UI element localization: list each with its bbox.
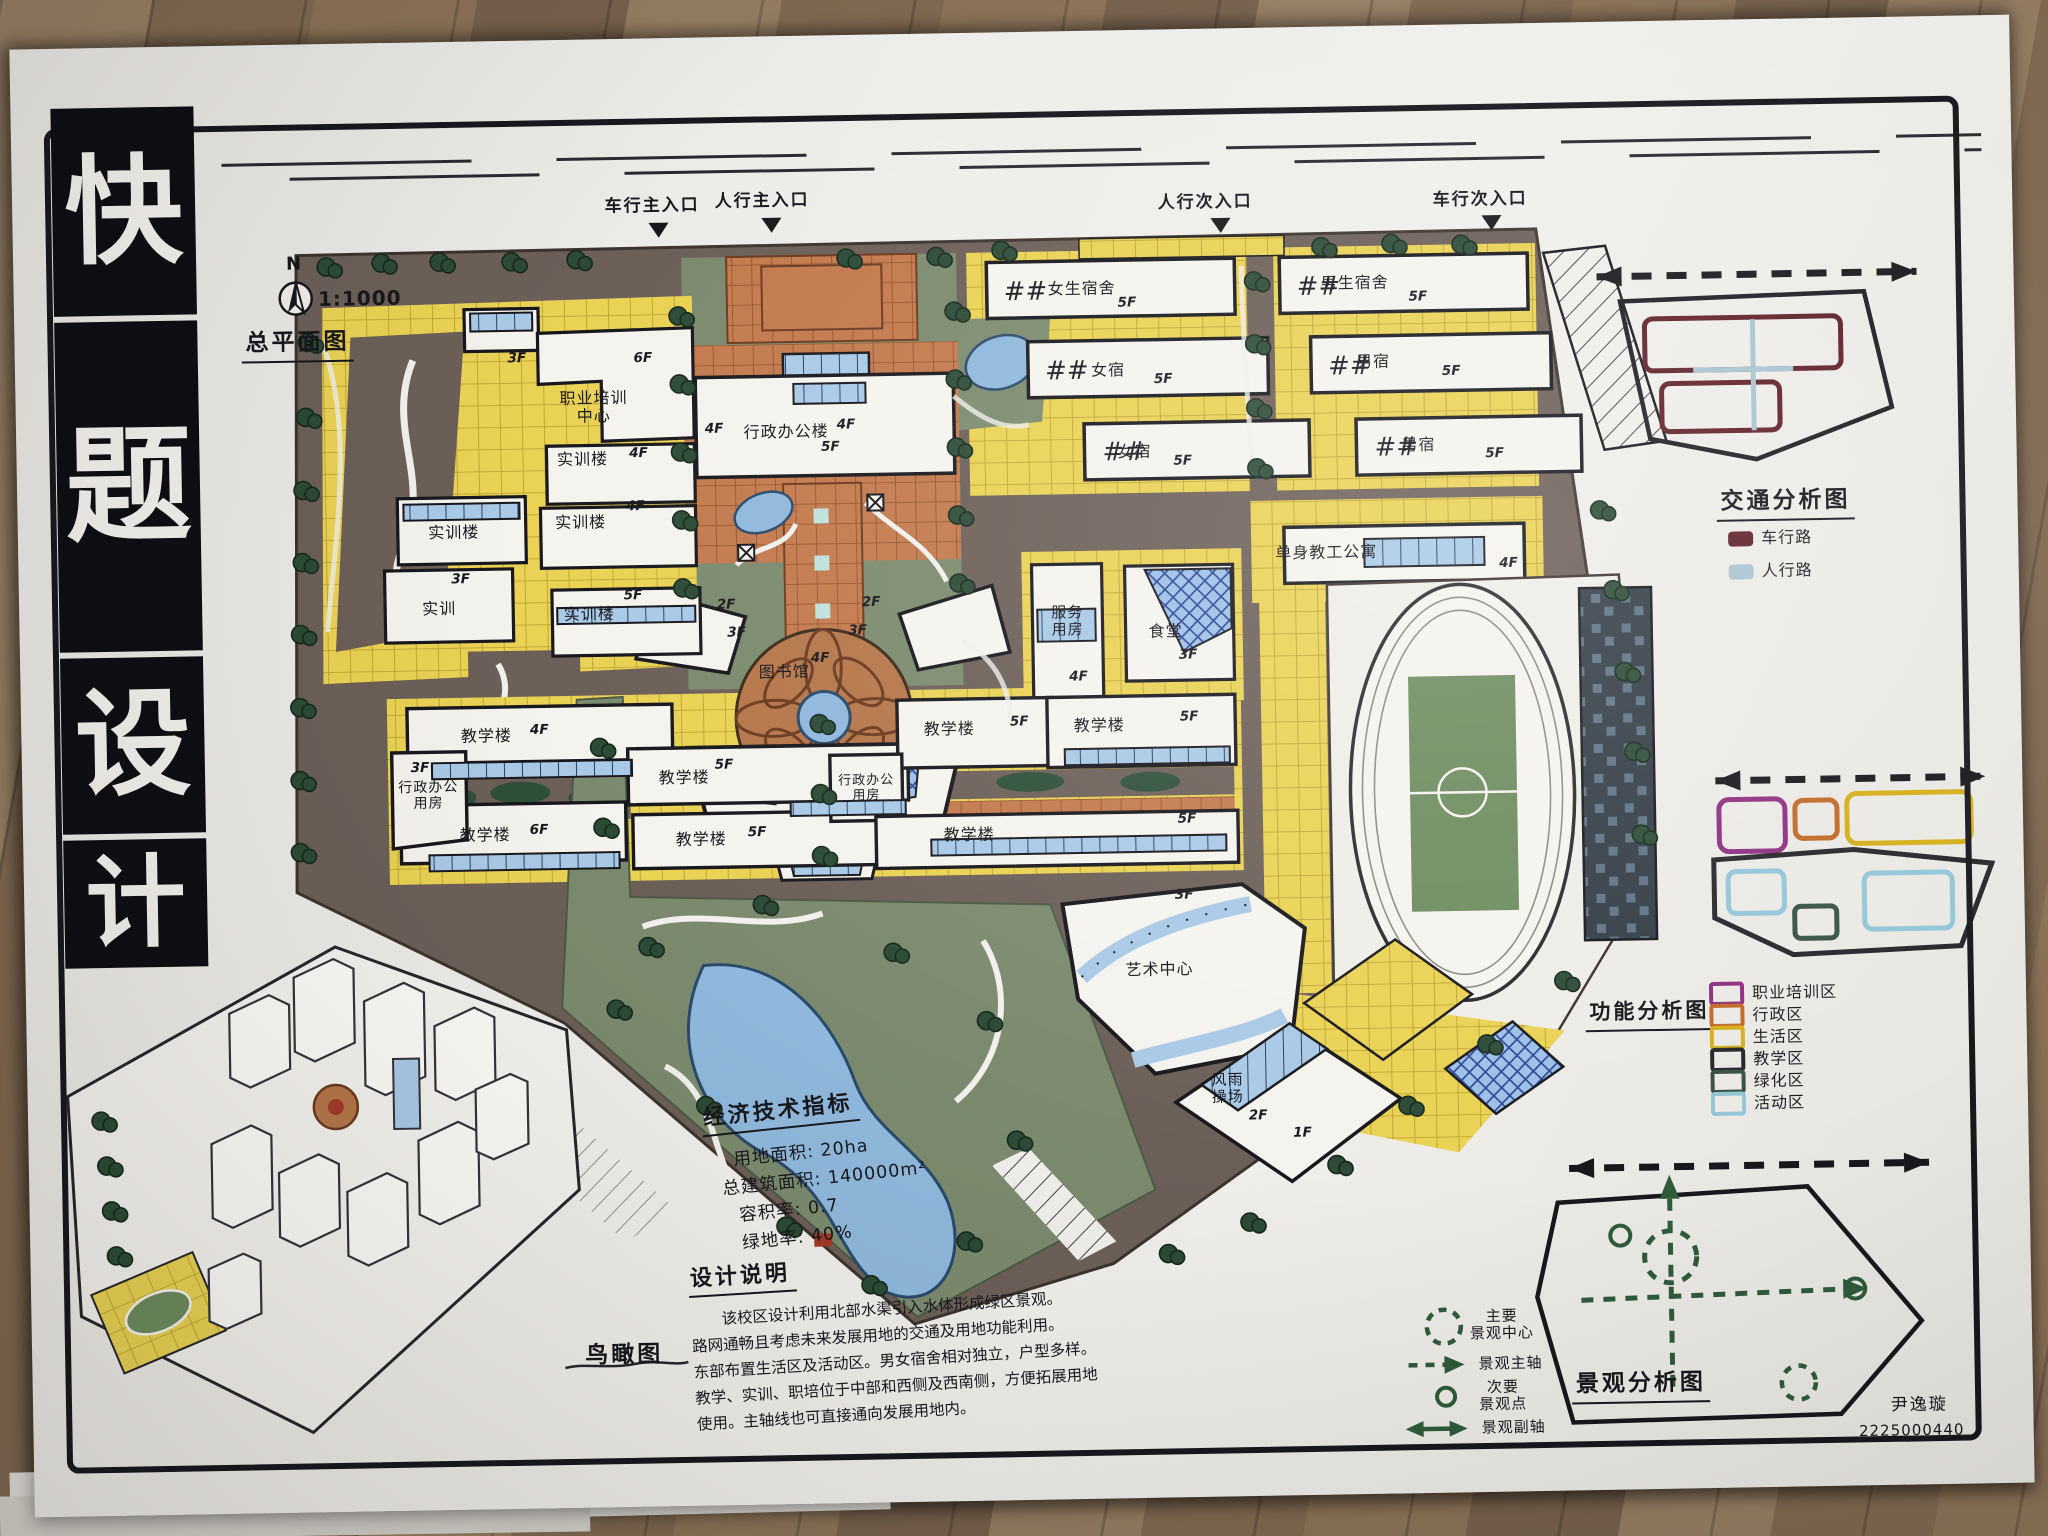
- building-label: 风雨 操场: [1211, 1071, 1244, 1105]
- legend-label: 职业培训区: [1752, 983, 1837, 1001]
- entrance-arrow-icon: [1481, 215, 1501, 230]
- entrance-arrow-icon: [1210, 218, 1230, 233]
- building-label: 行政办公 用房: [838, 774, 895, 804]
- building-label: 教学楼: [924, 720, 975, 739]
- floor-tag: 4F: [629, 446, 648, 461]
- floor-tag: 2F: [1249, 1108, 1268, 1123]
- entrance-label: 人行次入口: [1158, 192, 1253, 213]
- floor-tag: 3F: [507, 351, 526, 366]
- legend-item: 活动区: [1711, 1090, 1805, 1116]
- building-label: 教学楼: [676, 830, 727, 849]
- legend-label: 活动区: [1754, 1094, 1805, 1112]
- building-label: 单身教工公寓: [1275, 543, 1377, 563]
- entrance-arrow-icon: [761, 218, 781, 233]
- building-label: 实训: [422, 600, 456, 618]
- title-char-block: 题: [54, 320, 203, 652]
- title-char: 设: [74, 687, 192, 805]
- floor-tag: 5F: [821, 440, 840, 455]
- legend-label: 生活区: [1753, 1028, 1804, 1046]
- floor-tag: 4F: [811, 651, 830, 666]
- poster-sheet: 快 题 设 计: [9, 15, 2034, 1518]
- legend-label: 教学区: [1753, 1050, 1804, 1068]
- north-label: N: [286, 254, 302, 274]
- legend-item: 人行路: [1729, 562, 1813, 580]
- legend-swatch: [1710, 1047, 1745, 1072]
- building-label: 教学楼: [1074, 716, 1125, 735]
- title-char: 快: [64, 152, 184, 272]
- legend-label: 行政区: [1752, 1006, 1803, 1024]
- traffic-diagram-title: 交通分析图: [1716, 479, 1855, 521]
- floor-tag: 5F: [1178, 811, 1197, 826]
- floor-tag: 4F: [1069, 669, 1088, 684]
- building-label: 实训楼: [428, 523, 479, 542]
- legend-label: 车行路: [1761, 529, 1812, 547]
- building-label: 实训楼: [555, 513, 606, 532]
- legend-item: 车行路: [1728, 529, 1812, 547]
- floor-tag: 5F: [1117, 295, 1136, 310]
- building-label: 实训楼: [564, 605, 615, 624]
- legend-swatch: [1709, 1003, 1744, 1028]
- floor-tag: 5F: [1173, 453, 1192, 468]
- north-arrow-icon: [275, 276, 316, 319]
- legend-label: 景观副轴: [1481, 1419, 1545, 1437]
- floor-tag: 5F: [748, 825, 767, 840]
- building-label: 教学楼: [459, 826, 510, 845]
- title-char-block: 设: [60, 656, 206, 834]
- floor-tag: 4F: [1499, 556, 1518, 571]
- floor-tag: 4F: [626, 499, 645, 514]
- function-diagram-title: 功能分析图: [1585, 994, 1714, 1032]
- building-label: 男宿: [1401, 436, 1435, 454]
- building-label: 教学楼: [944, 826, 995, 845]
- floor-tag: 4F: [705, 422, 724, 437]
- building-label: 教学楼: [461, 727, 512, 746]
- signature-student-id: 2225000440: [1859, 1421, 1965, 1440]
- building-label: 女宿: [1091, 361, 1125, 379]
- building-label: 男宿: [1356, 353, 1390, 371]
- legend-label: 主要 景观中心: [1470, 1307, 1535, 1342]
- photo-of-drawing-board: 快 题 设 计: [0, 0, 2048, 1536]
- entrance-label: 人行主入口: [714, 191, 809, 212]
- floor-tag: 4F: [530, 723, 549, 738]
- floor-tag: 3F: [727, 625, 746, 640]
- building-label: 艺术中心: [1125, 960, 1193, 979]
- floor-tag: 2F: [862, 595, 881, 610]
- entrance-label: 车行主入口: [605, 196, 700, 217]
- floor-tag: 5F: [1180, 709, 1199, 724]
- floor-tag: 5F: [714, 757, 733, 772]
- building-label: 职业培训 中心: [559, 389, 628, 426]
- floor-tag: 5F: [1485, 446, 1504, 461]
- building-label: 实训楼: [557, 450, 608, 469]
- floor-tag: 3F: [1175, 887, 1194, 902]
- building-label: 服务 用房: [1051, 604, 1084, 638]
- signature-name: 尹逸璇: [1891, 1395, 1948, 1415]
- legend-label: 绿化区: [1753, 1072, 1804, 1090]
- floor-tag: 3F: [451, 572, 470, 587]
- building-label: 食堂: [1149, 622, 1183, 640]
- indicators-block: 经济技术指标 用地面积: 20ha 总建筑面积: 140000m² 容积率: 0…: [699, 1078, 933, 1261]
- legend-label: 景观主轴: [1478, 1355, 1542, 1373]
- floor-tag: 6F: [530, 823, 549, 838]
- legend-swatch: [1710, 1069, 1745, 1094]
- plan-title: 总平面图: [241, 322, 354, 364]
- legend-swatch: [1710, 1025, 1745, 1050]
- floor-tag: 2F: [717, 597, 736, 612]
- floor-tag: 1F: [1293, 1125, 1312, 1140]
- building-label: 女宿: [1117, 443, 1151, 461]
- building-label: 行政办公楼: [743, 422, 828, 441]
- entrance-label: 车行次入口: [1433, 190, 1528, 211]
- legend-swatch: [1729, 564, 1754, 579]
- building-label: 行政办公 用房: [398, 780, 459, 812]
- floor-tag: 5F: [1010, 714, 1029, 729]
- entrance-arrow-icon: [648, 223, 668, 238]
- floor-tag: 3F: [848, 623, 867, 638]
- legend-swatch: [1728, 531, 1753, 546]
- title-char-block: 计: [63, 838, 208, 968]
- poster-content: 快 题 设 计: [9, 15, 2034, 1518]
- floor-tag: 5F: [1408, 289, 1427, 304]
- legend-swatch: [1711, 1091, 1746, 1116]
- building-label: 女生宿舍: [1048, 279, 1116, 298]
- floor-tag: 3F: [1179, 647, 1198, 662]
- bird-view-title: 鸟瞰图: [581, 1334, 668, 1373]
- landscape-legend-icons: [1399, 1302, 1476, 1443]
- title-char-block: 快: [50, 106, 197, 316]
- legend-swatch: [1709, 981, 1744, 1006]
- legend-label: 次要 景观点: [1479, 1378, 1528, 1412]
- scale-label: 1:1000: [318, 287, 402, 311]
- building-label: 男生宿舍: [1320, 274, 1388, 293]
- title-char: 题: [64, 422, 192, 550]
- building-label: 教学楼: [658, 769, 709, 788]
- floor-tag: 5F: [624, 588, 643, 603]
- description-title: 设计说明: [687, 1254, 797, 1298]
- floor-tag: 5F: [1154, 372, 1173, 387]
- floor-tag: 6F: [633, 351, 652, 366]
- floor-tag: 3F: [411, 761, 430, 776]
- landscape-diagram-title: 景观分析图: [1572, 1362, 1711, 1404]
- description-block: 设计说明 该校区设计利用北部水渠引入水体形成绿区景观。 路网通畅且考虑未来发展用…: [687, 1233, 1157, 1438]
- building-label: 图书馆: [759, 663, 810, 682]
- legend-label: 人行路: [1762, 562, 1813, 580]
- floor-tag: 5F: [1442, 364, 1461, 379]
- title-char: 计: [85, 853, 187, 955]
- floor-tag: 4F: [837, 417, 856, 432]
